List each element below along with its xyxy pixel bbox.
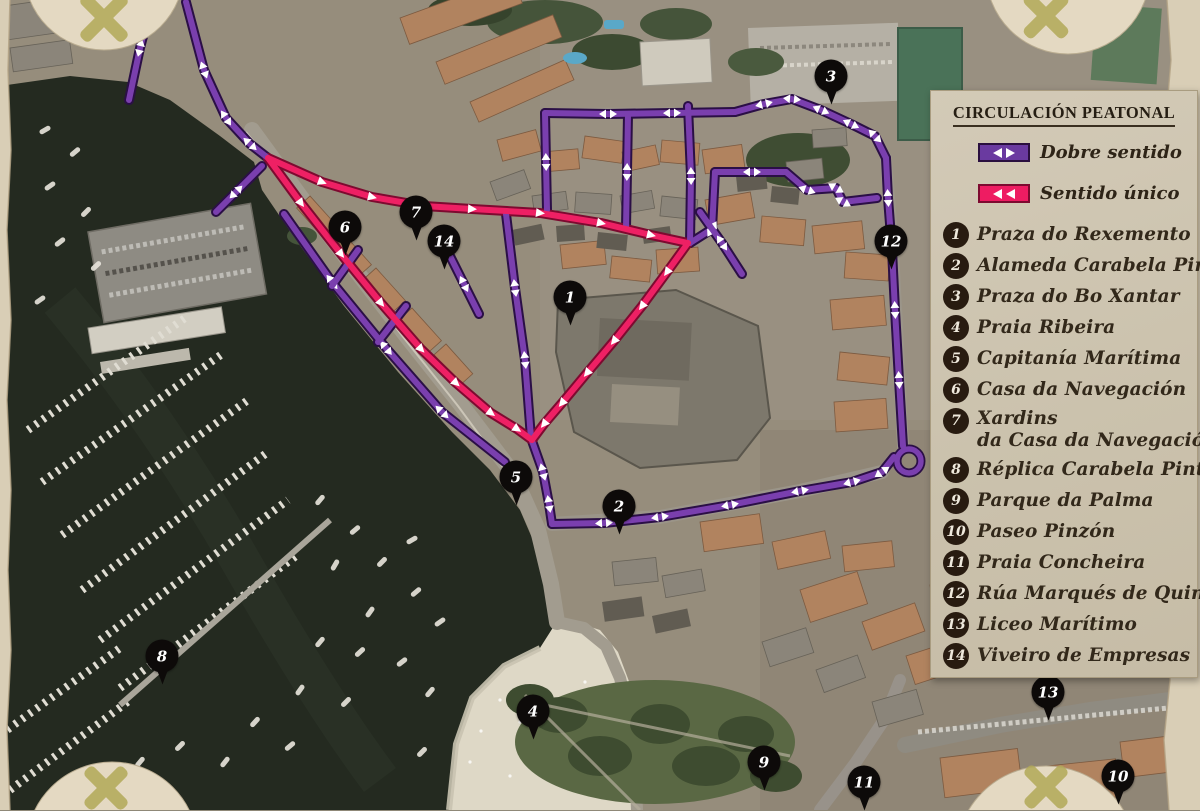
legend-item-label: Praia Concheira <box>977 550 1145 576</box>
legend-item-number: 7 <box>943 408 969 434</box>
map-marker-14[interactable]: 14 <box>428 225 461 258</box>
map-marker-label: 13 <box>1038 683 1059 701</box>
map-marker-11[interactable]: 11 <box>848 766 881 799</box>
legend-item-label: Praza do Rexemento <box>977 222 1191 248</box>
legend-item-number: 8 <box>943 457 969 483</box>
legend-item-8: 8Réplica Carabela Pinta <box>943 457 1194 483</box>
legend-item-13: 13Liceo Marítimo <box>943 612 1194 638</box>
legend-item-label: Rúa Marqués de Quintanar <box>977 581 1200 607</box>
map-marker-1[interactable]: 1 <box>554 281 587 314</box>
legend-panel: CIRCULACIÓN PEATONAL Dobre sentido Senti… <box>930 90 1198 678</box>
legend-route-label: Sentido único <box>1040 183 1180 204</box>
single-direction-swatch <box>978 184 1030 203</box>
map-marker-6[interactable]: 6 <box>329 211 362 244</box>
arrow-right-icon <box>1006 148 1015 158</box>
legend-route-label: Dobre sentido <box>1040 142 1182 163</box>
legend-item-number: 10 <box>943 519 969 545</box>
legend-item-label: Paseo Pinzón <box>977 519 1115 545</box>
map-marker-12[interactable]: 12 <box>875 225 908 258</box>
legend-item-label: Réplica Carabela Pinta <box>977 457 1200 483</box>
legend-item-14: 14Viveiro de Empresas <box>943 643 1194 669</box>
map-page: 1 2 3 4 5 6 7 8 9 10 11 12 13 14 CIRCULA… <box>0 0 1200 810</box>
double-direction-swatch <box>978 143 1030 162</box>
legend-list: 1Praza do Rexemento 2Alameda Carabela Pi… <box>943 222 1194 674</box>
legend-item-5: 5Capitanía Marítima <box>943 346 1194 372</box>
legend-item-number: 1 <box>943 222 969 248</box>
map-marker-label: 5 <box>511 468 521 486</box>
legend-item-label: Alameda Carabela Pinta <box>977 253 1200 279</box>
legend-item-label: Praia Ribeira <box>977 315 1115 341</box>
legend-route-double: Dobre sentido <box>978 142 1182 163</box>
legend-item-number: 14 <box>943 643 969 669</box>
legend-item-4: 4Praia Ribeira <box>943 315 1194 341</box>
legend-item-number: 5 <box>943 346 969 372</box>
map-marker-13[interactable]: 13 <box>1032 676 1065 709</box>
legend-item-3: 3Praza do Bo Xantar <box>943 284 1194 310</box>
legend-item-label: Xardinsda Casa da Navegación <box>977 408 1200 452</box>
legend-item-number: 13 <box>943 612 969 638</box>
map-marker-7[interactable]: 7 <box>400 196 433 229</box>
legend-item-10: 10Paseo Pinzón <box>943 519 1194 545</box>
legend-item-number: 2 <box>943 253 969 279</box>
legend-item-11: 11Praia Concheira <box>943 550 1194 576</box>
legend-route-single: Sentido único <box>978 183 1180 204</box>
legend-item-number: 4 <box>943 315 969 341</box>
legend-title: CIRCULACIÓN PEATONAL <box>930 103 1198 127</box>
legend-item-label: Parque da Palma <box>977 488 1154 514</box>
map-marker-label: 1 <box>565 288 575 306</box>
map-marker-label: 11 <box>854 773 875 791</box>
map-marker-8[interactable]: 8 <box>146 640 179 673</box>
legend-item-label: Viveiro de Empresas <box>977 643 1190 669</box>
legend-item-number: 3 <box>943 284 969 310</box>
legend-item-number: 11 <box>943 550 969 576</box>
legend-item-label: Capitanía Marítima <box>977 346 1181 372</box>
map-marker-label: 7 <box>411 203 421 221</box>
arrow-left-icon <box>1006 189 1015 199</box>
legend-item-1: 1Praza do Rexemento <box>943 222 1194 248</box>
map-marker-label: 10 <box>1108 767 1129 785</box>
legend-item-7: 7Xardinsda Casa da Navegación <box>943 408 1194 452</box>
map-marker-label: 6 <box>340 218 350 236</box>
legend-item-label: Praza do Bo Xantar <box>977 284 1180 310</box>
legend-item-2: 2Alameda Carabela Pinta <box>943 253 1194 279</box>
arrow-left-icon <box>993 148 1002 158</box>
map-marker-4[interactable]: 4 <box>517 695 550 728</box>
map-marker-label: 8 <box>157 647 167 665</box>
map-marker-10[interactable]: 10 <box>1102 760 1135 793</box>
map-marker-label: 3 <box>826 67 836 85</box>
map-marker-9[interactable]: 9 <box>748 746 781 779</box>
arrow-left-icon <box>993 189 1002 199</box>
building-white <box>640 38 712 86</box>
map-marker-2[interactable]: 2 <box>603 490 636 523</box>
map-marker-5[interactable]: 5 <box>500 461 533 494</box>
legend-item-label: Liceo Marítimo <box>977 612 1137 638</box>
map-marker-label: 2 <box>614 497 624 515</box>
legend-item-label: Casa da Navegación <box>977 377 1186 403</box>
legend-item-number: 6 <box>943 377 969 403</box>
map-marker-label: 9 <box>759 753 769 771</box>
legend-item-12: 12Rúa Marqués de Quintanar <box>943 581 1194 607</box>
legend-item-9: 9Parque da Palma <box>943 488 1194 514</box>
map-marker-label: 4 <box>528 702 538 720</box>
legend-item-6: 6Casa da Navegación <box>943 377 1194 403</box>
legend-item-number: 9 <box>943 488 969 514</box>
map-marker-label: 12 <box>881 232 902 250</box>
map-marker-label: 14 <box>434 232 455 250</box>
legend-item-number: 12 <box>943 581 969 607</box>
map-marker-3[interactable]: 3 <box>815 60 848 93</box>
